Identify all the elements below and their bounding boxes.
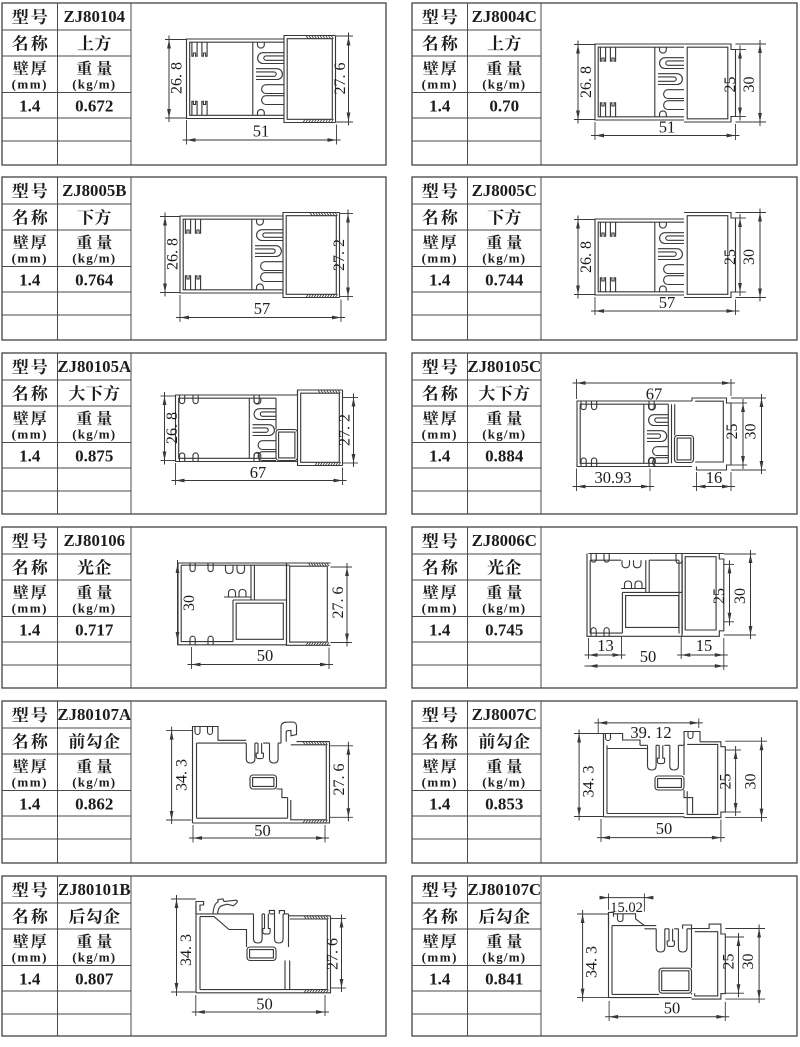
svg-text:1.4: 1.4 xyxy=(429,969,451,988)
svg-text:ZJ80105C: ZJ80105C xyxy=(467,357,541,376)
svg-text:50: 50 xyxy=(256,994,273,1013)
svg-text:(kg/m): (kg/m) xyxy=(482,774,526,789)
svg-text:(mm): (mm) xyxy=(12,250,48,265)
svg-text:1.4: 1.4 xyxy=(429,794,451,813)
svg-text:30: 30 xyxy=(741,77,758,93)
svg-text:ZJ80107C: ZJ80107C xyxy=(467,880,541,899)
svg-text:(mm): (mm) xyxy=(422,774,458,789)
svg-text:(mm): (mm) xyxy=(12,76,48,91)
svg-text:ZJ8004C: ZJ8004C xyxy=(472,7,537,26)
svg-text:0.862: 0.862 xyxy=(75,794,113,813)
svg-text:30: 30 xyxy=(732,588,749,604)
svg-text:50: 50 xyxy=(254,821,271,840)
svg-text:25: 25 xyxy=(721,954,738,970)
svg-text:15: 15 xyxy=(696,636,713,655)
svg-text:1.4: 1.4 xyxy=(19,969,41,988)
svg-text:0.764: 0.764 xyxy=(75,270,114,289)
svg-text:26. 8: 26. 8 xyxy=(164,412,181,444)
svg-text:(kg/m): (kg/m) xyxy=(482,76,526,91)
svg-text:0.807: 0.807 xyxy=(75,969,114,988)
svg-text:50: 50 xyxy=(257,646,274,665)
svg-text:0.672: 0.672 xyxy=(75,96,113,115)
svg-text:34. 3: 34. 3 xyxy=(584,946,601,978)
svg-text:(mm): (mm) xyxy=(12,600,48,615)
svg-text:50: 50 xyxy=(656,819,673,838)
svg-text:ZJ8005B: ZJ8005B xyxy=(62,181,126,200)
svg-text:34. 3: 34. 3 xyxy=(581,766,598,798)
svg-text:1.4: 1.4 xyxy=(429,270,451,289)
svg-text:(mm): (mm) xyxy=(12,774,48,789)
svg-text:25: 25 xyxy=(711,588,728,604)
svg-text:25: 25 xyxy=(724,424,741,440)
svg-text:(kg/m): (kg/m) xyxy=(72,426,116,441)
svg-text:13: 13 xyxy=(597,636,614,655)
svg-text:1.4: 1.4 xyxy=(19,270,41,289)
svg-text:51: 51 xyxy=(253,122,270,141)
svg-text:50: 50 xyxy=(664,999,681,1018)
svg-text:ZJ8007C: ZJ8007C xyxy=(472,705,537,724)
svg-text:30: 30 xyxy=(743,424,760,440)
svg-text:0.744: 0.744 xyxy=(485,270,524,289)
svg-text:(kg/m): (kg/m) xyxy=(482,600,526,615)
svg-text:ZJ80105A: ZJ80105A xyxy=(57,357,131,376)
svg-text:(kg/m): (kg/m) xyxy=(72,949,116,964)
svg-text:26. 8: 26. 8 xyxy=(578,241,595,273)
svg-text:1.4: 1.4 xyxy=(429,96,451,115)
svg-text:ZJ8006C: ZJ8006C xyxy=(472,531,537,550)
svg-text:0.745: 0.745 xyxy=(485,620,523,639)
svg-text:(kg/m): (kg/m) xyxy=(72,600,116,615)
svg-text:(kg/m): (kg/m) xyxy=(482,949,526,964)
svg-text:(mm): (mm) xyxy=(422,600,458,615)
svg-text:(mm): (mm) xyxy=(422,250,458,265)
svg-text:(kg/m): (kg/m) xyxy=(482,250,526,265)
svg-text:30: 30 xyxy=(743,774,760,790)
svg-text:0.717: 0.717 xyxy=(75,620,114,639)
svg-text:(mm): (mm) xyxy=(422,949,458,964)
svg-text:ZJ80106: ZJ80106 xyxy=(63,531,125,550)
svg-text:(kg/m): (kg/m) xyxy=(72,76,116,91)
svg-text:(mm): (mm) xyxy=(12,426,48,441)
svg-text:1.4: 1.4 xyxy=(429,446,451,465)
svg-text:39. 12: 39. 12 xyxy=(630,723,671,742)
svg-text:1.4: 1.4 xyxy=(19,446,41,465)
svg-text:16: 16 xyxy=(706,468,723,487)
svg-text:0.70: 0.70 xyxy=(489,96,519,115)
svg-text:30: 30 xyxy=(741,249,758,265)
svg-text:0.841: 0.841 xyxy=(485,969,523,988)
svg-text:ZJ80101B: ZJ80101B xyxy=(58,880,131,899)
svg-text:(mm): (mm) xyxy=(422,426,458,441)
svg-text:(mm): (mm) xyxy=(422,76,458,91)
svg-text:51: 51 xyxy=(659,118,676,137)
svg-text:(kg/m): (kg/m) xyxy=(72,774,116,789)
svg-text:1.4: 1.4 xyxy=(19,96,41,115)
svg-text:57: 57 xyxy=(254,299,271,318)
svg-text:67: 67 xyxy=(250,463,267,482)
svg-text:27. 6: 27. 6 xyxy=(325,938,342,970)
svg-text:(mm): (mm) xyxy=(12,949,48,964)
svg-text:26. 8: 26. 8 xyxy=(165,238,182,270)
svg-text:27. 6: 27. 6 xyxy=(331,764,348,796)
svg-text:25: 25 xyxy=(722,77,739,93)
svg-text:1.4: 1.4 xyxy=(19,794,41,813)
svg-text:26. 8: 26. 8 xyxy=(578,66,595,98)
svg-text:(kg/m): (kg/m) xyxy=(72,250,116,265)
svg-text:ZJ80104: ZJ80104 xyxy=(63,7,125,26)
svg-text:25: 25 xyxy=(718,774,735,790)
svg-text:1.4: 1.4 xyxy=(19,620,41,639)
svg-text:27. 2: 27. 2 xyxy=(331,239,348,271)
svg-text:30: 30 xyxy=(740,954,757,970)
svg-text:ZJ80107A: ZJ80107A xyxy=(57,705,131,724)
svg-text:30.93: 30.93 xyxy=(594,468,631,487)
svg-text:34. 3: 34. 3 xyxy=(178,934,195,966)
svg-text:26. 8: 26. 8 xyxy=(169,62,186,94)
svg-text:(kg/m): (kg/m) xyxy=(482,426,526,441)
svg-text:27. 6: 27. 6 xyxy=(332,63,349,95)
svg-text:0.875: 0.875 xyxy=(75,446,113,465)
svg-text:57: 57 xyxy=(659,293,676,312)
svg-text:34. 3: 34. 3 xyxy=(174,759,191,791)
svg-text:50: 50 xyxy=(640,647,657,666)
svg-text:25: 25 xyxy=(722,249,739,265)
svg-text:27. 6: 27. 6 xyxy=(330,587,347,619)
svg-text:ZJ8005C: ZJ8005C xyxy=(472,181,537,200)
svg-text:0.853: 0.853 xyxy=(485,794,523,813)
svg-text:0.884: 0.884 xyxy=(485,446,524,465)
svg-text:27. 2: 27. 2 xyxy=(337,414,354,446)
svg-text:1.4: 1.4 xyxy=(429,620,451,639)
svg-text:30: 30 xyxy=(181,595,198,611)
